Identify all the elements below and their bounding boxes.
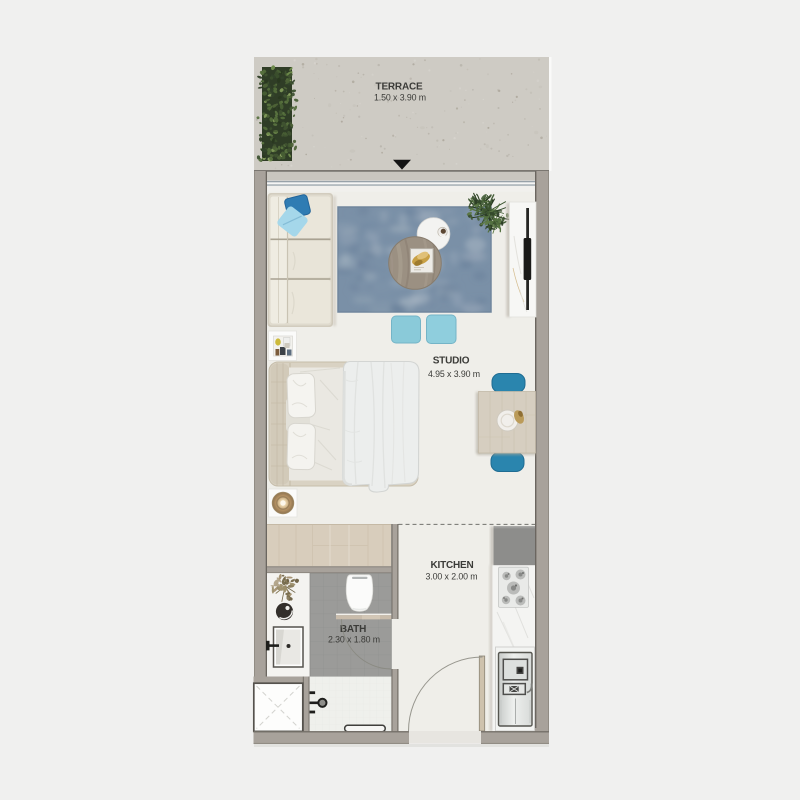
svg-text:KITCHEN: KITCHEN bbox=[430, 560, 473, 571]
svg-text:3.00 x 2.00 m: 3.00 x 2.00 m bbox=[425, 572, 477, 582]
svg-text:TERRACE: TERRACE bbox=[376, 82, 423, 93]
svg-text:1.50 x 3.90 m: 1.50 x 3.90 m bbox=[374, 93, 426, 103]
svg-text:2.30 x 1.80 m: 2.30 x 1.80 m bbox=[328, 635, 380, 645]
svg-text:STUDIO: STUDIO bbox=[433, 356, 470, 367]
svg-text:4.95 x 3.90 m: 4.95 x 3.90 m bbox=[428, 369, 480, 379]
